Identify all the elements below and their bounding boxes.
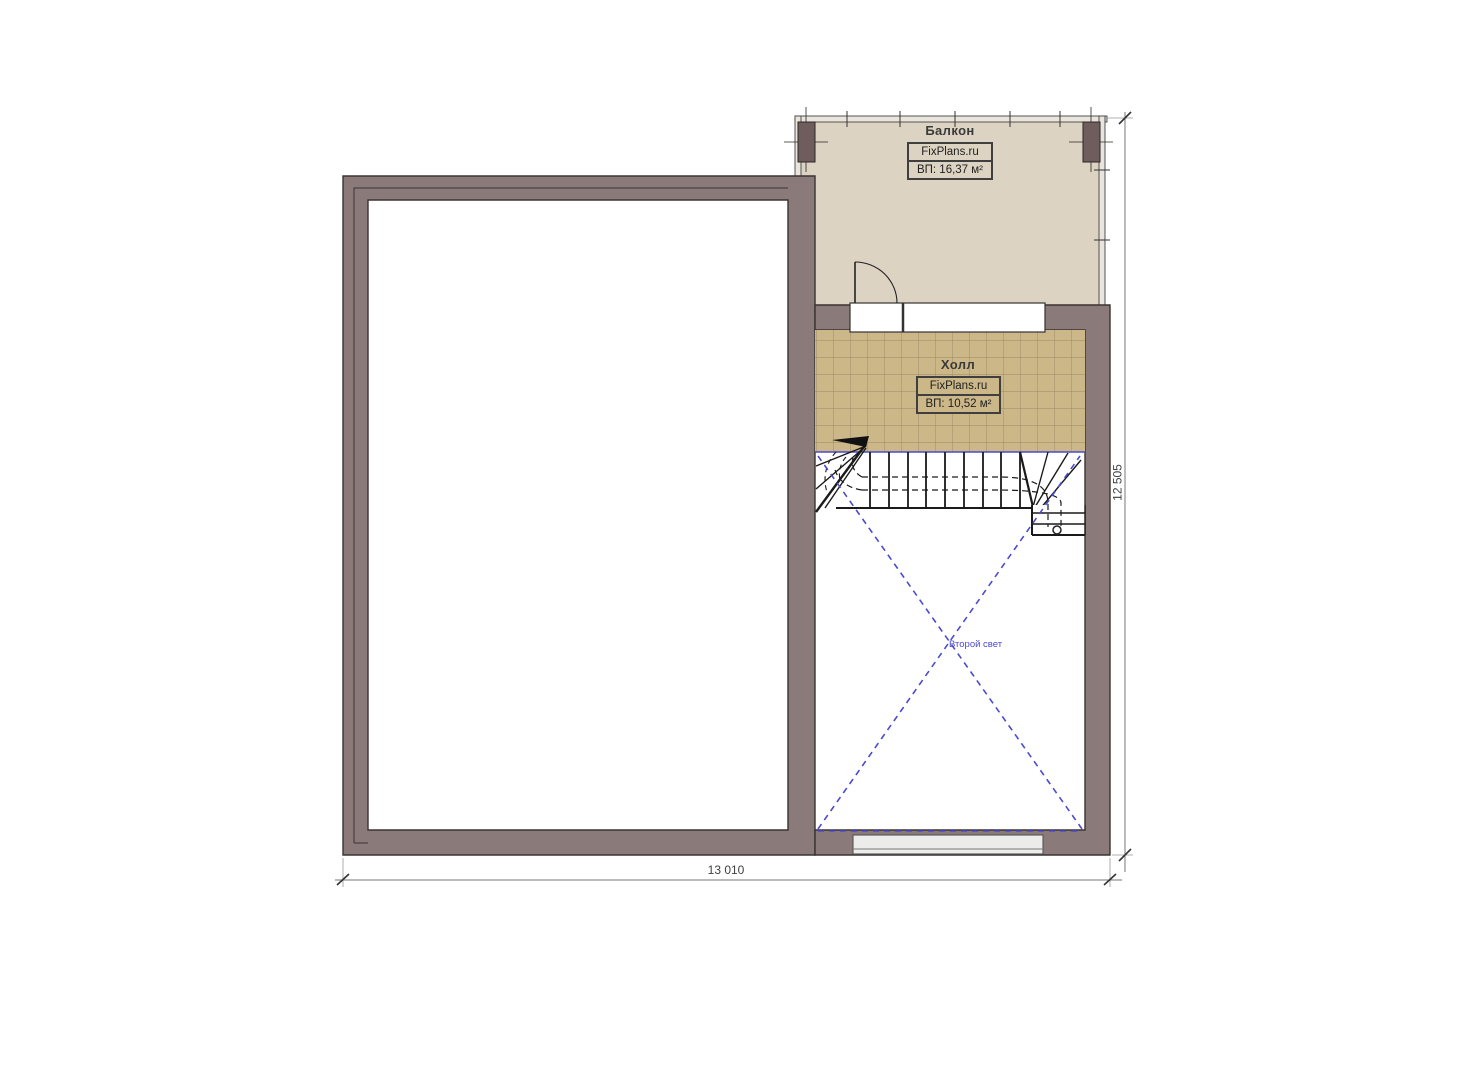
balcony-column-left <box>798 122 815 162</box>
hall-area-text: ВП: 10,52 м² <box>918 394 999 412</box>
balcony-info-table: FixPlans.ru ВП: 16,37 м² <box>907 142 993 180</box>
floor-plan: Балкон FixPlans.ru ВП: 16,37 м² Холл Fix… <box>0 0 1473 1080</box>
width-dimension-value: 13 010 <box>626 863 826 877</box>
balcony-room-label: Балкон <box>900 123 1000 138</box>
stair-walk-lines <box>835 458 1061 527</box>
second-light-label: Второй свет <box>949 639 1059 650</box>
bottom-window <box>853 835 1043 854</box>
balcony-area-text: ВП: 16,37 м² <box>909 160 991 178</box>
hall-brand-text: FixPlans.ru <box>918 378 999 394</box>
hall-room-label: Холл <box>908 357 1008 372</box>
balcony-column-right <box>1083 122 1100 162</box>
stair-newel-post <box>1053 526 1061 534</box>
balcony-brand-text: FixPlans.ru <box>909 144 991 160</box>
hall-info-table: FixPlans.ru ВП: 10,52 м² <box>916 376 1001 414</box>
floor-plan-drawing <box>0 0 1473 1080</box>
height-dimension-value: 12 505 <box>1111 418 1126 548</box>
